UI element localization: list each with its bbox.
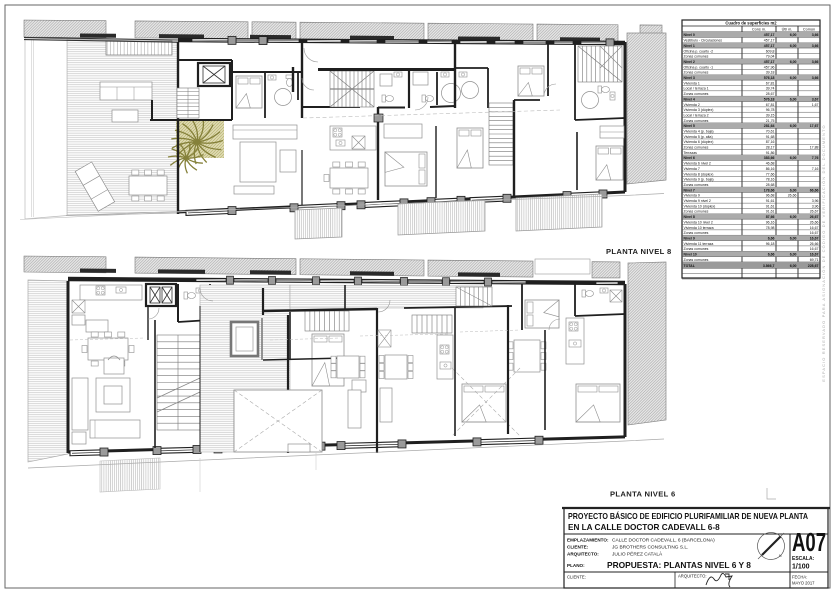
svg-text:3,96: 3,96 [812,204,819,208]
svg-text:MAYO 2017: MAYO 2017 [792,581,815,586]
svg-text:79,04: 79,04 [766,55,775,59]
svg-text:3,96: 3,96 [812,199,819,203]
svg-text:Nivel 6: Nivel 6 [684,156,695,160]
svg-text:Vivienda 6 (dúplex): Vivienda 6 (dúplex) [684,140,714,144]
svg-text:6,00: 6,00 [790,124,797,128]
svg-text:91,86: 91,86 [766,151,775,155]
svg-text:70,61: 70,61 [766,130,775,134]
svg-text:ARQUITECTO:: ARQUITECTO: [678,574,707,579]
svg-text:16,67: 16,67 [810,231,819,235]
svg-text:28,17: 28,17 [766,146,775,150]
svg-text:228,67: 228,67 [808,264,819,268]
svg-text:66,66: 66,66 [810,188,819,192]
svg-text:26,67: 26,67 [810,210,819,214]
svg-text:3,66: 3,66 [812,76,819,80]
svg-text:383,66: 383,66 [764,156,775,160]
svg-text:26,66: 26,66 [810,242,819,246]
svg-text:87,66: 87,66 [766,215,775,219]
svg-text:Común: Común [803,28,815,32]
svg-text:7,76: 7,76 [812,156,819,160]
svg-text:FECHA:: FECHA: [792,575,807,580]
svg-text:91,61: 91,61 [766,199,775,203]
svg-text:JULIO PÉREZ CATALÀ: JULIO PÉREZ CATALÀ [612,551,663,558]
svg-text:69,71: 69,71 [810,258,819,262]
svg-text:78,16: 78,16 [766,178,775,182]
svg-text:6,00: 6,00 [790,76,797,80]
svg-text:3,66: 3,66 [812,33,819,37]
svg-text:PLANO:: PLANO: [567,563,585,568]
svg-text:PLANTA NIVEL 6: PLANTA NIVEL 6 [610,490,676,499]
svg-text:87,16: 87,16 [766,140,775,144]
svg-text:16,67: 16,67 [810,247,819,251]
svg-text:17,67: 17,67 [810,124,819,128]
svg-text:Nivel 10: Nivel 10 [684,253,697,257]
svg-text:A07: A07 [792,527,826,557]
svg-text:Nivel 5: Nivel 5 [684,124,695,128]
svg-text:Nivel 1: Nivel 1 [684,44,695,48]
svg-text:Vivienda 5 (p. alta): Vivienda 5 (p. alta) [684,135,713,139]
svg-text:Nivel 0: Nivel 0 [684,33,695,37]
svg-text:EMPLAZAMIENTO:: EMPLAZAMIENTO: [567,538,609,543]
svg-text:Vivienda 9 nivel 2: Vivienda 9 nivel 2 [684,199,711,203]
svg-text:457,96: 457,96 [764,65,775,69]
svg-text:Vivienda 11 terraza: Vivienda 11 terraza [684,242,714,246]
svg-text:Terrazas: Terrazas [684,151,698,155]
svg-text:39,74: 39,74 [766,87,775,91]
svg-text:Oficina p. cuarto -2: Oficina p. cuarto -2 [684,49,714,53]
svg-text:Zonas comunes: Zonas comunes [684,231,709,235]
svg-text:16,67: 16,67 [810,253,819,257]
svg-text:16,67: 16,67 [810,226,819,230]
svg-text:609,8: 609,8 [766,49,775,53]
svg-text:Zonas comunes: Zonas comunes [684,210,709,214]
svg-text:6,00: 6,00 [790,236,797,240]
svg-text:1,67: 1,67 [812,103,819,107]
svg-text:6,00: 6,00 [790,33,797,37]
svg-text:Oficina p. cuarto -1: Oficina p. cuarto -1 [684,65,714,69]
svg-text:91,61: 91,61 [766,204,775,208]
svg-text:Zonas comunes: Zonas comunes [684,71,709,75]
svg-text:6,00: 6,00 [790,44,797,48]
svg-text:Vivienda 9 (p. baja): Vivienda 9 (p. baja) [684,178,714,182]
svg-text:457,17: 457,17 [764,39,775,43]
svg-text:6,00: 6,00 [790,264,797,268]
svg-text:PLANTA NIVEL 8: PLANTA NIVEL 8 [606,247,672,256]
svg-text:67,81: 67,81 [766,103,775,107]
svg-text:ARQUITECTO:: ARQUITECTO: [567,552,599,557]
svg-text:PROPUESTA: PLANTAS NIVEL 6 Y 8: PROPUESTA: PLANTAS NIVEL 6 Y 8 [607,560,751,570]
svg-text:6,00: 6,00 [790,253,797,257]
svg-text:39,15: 39,15 [766,113,775,117]
svg-text:67,81: 67,81 [766,81,775,85]
svg-text:ESPACIO RESERVADO PARA ASIGNAC: ESPACIO RESERVADO PARA ASIGNACIÓN DE CÓD… [821,124,826,381]
svg-text:Vivienda 10 terraza: Vivienda 10 terraza [684,226,714,230]
svg-text:16,67: 16,67 [810,236,819,240]
svg-text:Nivel 4: Nivel 4 [684,97,695,101]
svg-text:26,66: 26,66 [788,194,797,198]
svg-text:6,00: 6,00 [790,156,797,160]
svg-text:Vivienda 6 nivel 2: Vivienda 6 nivel 2 [684,162,711,166]
svg-text:457,17: 457,17 [764,60,775,64]
svg-text:96,16: 96,16 [766,220,775,224]
svg-text:Nivel 8: Nivel 8 [684,215,695,219]
svg-text:Vivienda 7: Vivienda 7 [684,167,700,171]
svg-text:7,16: 7,16 [812,167,819,171]
svg-text:Nivel 2: Nivel 2 [684,60,695,64]
svg-text:JG BROTHERS CONSULTING S.L.: JG BROTHERS CONSULTING S.L. [612,545,688,551]
svg-text:96,18: 96,18 [766,242,775,246]
svg-text:Nivel 3: Nivel 3 [684,76,695,80]
svg-text:Vivienda 2: Vivienda 2 [684,103,700,107]
svg-text:3,66: 3,66 [812,44,819,48]
svg-text:6,00: 6,00 [790,215,797,219]
svg-text:Zonas comunes: Zonas comunes [684,146,709,150]
svg-text:281,64: 281,64 [764,124,775,128]
svg-text:TOTAL: TOTAL [684,264,696,268]
svg-text:Útil m.: Útil m. [782,27,793,32]
svg-text:Vivienda 10 (dúplex): Vivienda 10 (dúplex) [684,204,716,208]
svg-text:Zonas comunes: Zonas comunes [684,183,709,187]
svg-text:Vestíbulo - Circulaciones: Vestíbulo - Circulaciones [684,39,723,43]
svg-text:46,68: 46,68 [766,162,775,166]
svg-text:Cuadro de superficies m2: Cuadro de superficies m2 [725,21,777,26]
svg-text:96,68: 96,68 [766,194,775,198]
svg-text:457,17: 457,17 [764,44,775,48]
svg-text:Vivienda 3 (dúplex): Vivienda 3 (dúplex) [684,108,714,112]
svg-text:Vivienda 10 nivel 2: Vivienda 10 nivel 2 [684,220,713,224]
svg-text:178,66: 178,66 [764,188,775,192]
svg-text:Cons m.: Cons m. [752,28,766,32]
svg-text:21,75: 21,75 [766,119,775,123]
svg-text:26,67: 26,67 [810,215,819,219]
svg-text:457,17: 457,17 [764,33,775,37]
svg-text:28,67: 28,67 [766,92,775,96]
svg-text:PROYECTO BÁSICO DE EDIFICIO PL: PROYECTO BÁSICO DE EDIFICIO PLURIFAMILIA… [568,510,808,521]
svg-text:Local / terraza 1: Local / terraza 1 [684,87,709,91]
svg-text:576,18: 576,18 [764,97,775,101]
svg-text:91,68: 91,68 [766,135,775,139]
svg-text:Vivienda 4 (p. baja): Vivienda 4 (p. baja) [684,130,714,134]
svg-text:17,88: 17,88 [810,146,819,150]
svg-text:Nivel 9: Nivel 9 [684,236,695,240]
svg-text:39,18: 39,18 [766,71,775,75]
svg-text:86,16: 86,16 [766,167,775,171]
svg-text:Zonas comunes: Zonas comunes [684,247,709,251]
svg-text:3,67: 3,67 [812,97,819,101]
svg-text:576,18: 576,18 [764,76,775,80]
svg-text:Zonas comunes: Zonas comunes [684,55,709,59]
svg-text:91,61: 91,61 [766,210,775,214]
svg-text:Zonas comunes: Zonas comunes [684,92,709,96]
svg-text:1/100: 1/100 [792,564,810,571]
svg-text:Zonas comunes: Zonas comunes [684,258,709,262]
svg-text:3,66: 3,66 [812,60,819,64]
svg-text:26,66: 26,66 [810,220,819,224]
svg-text:Vivienda 1: Vivienda 1 [684,81,700,85]
svg-text:Local / terraza 2: Local / terraza 2 [684,113,709,117]
svg-text:Zonas comunes: Zonas comunes [684,119,709,123]
svg-text:6,66: 6,66 [768,236,775,240]
svg-text:96,78: 96,78 [766,108,775,112]
svg-text:CLIENTE:: CLIENTE: [567,575,586,580]
svg-text:CALLE DOCTOR CADEVALL, 6 (BARC: CALLE DOCTOR CADEVALL, 6 (BARCELONA) [612,538,715,544]
svg-text:CLIENTE:: CLIENTE: [567,545,589,550]
svg-text:Nivel 7: Nivel 7 [684,188,695,192]
svg-text:28,68: 28,68 [766,183,775,187]
svg-text:6,66: 6,66 [768,253,775,257]
svg-text:Vivienda 8 (dúplex): Vivienda 8 (dúplex) [684,172,714,176]
svg-text:ESCALA:: ESCALA: [792,556,815,562]
svg-text:EN LA CALLE DOCTOR CADEVALL 6: EN LA CALLE DOCTOR CADEVALL 6-8 [568,523,720,532]
svg-text:78,98: 78,98 [766,226,775,230]
svg-text:Vivienda 9: Vivienda 9 [684,194,700,198]
svg-text:6,00: 6,00 [790,60,797,64]
svg-text:77,66: 77,66 [766,172,775,176]
svg-text:6,00: 6,00 [790,97,797,101]
svg-text:3.866,7: 3.866,7 [763,264,775,268]
svg-text:6,00: 6,00 [790,188,797,192]
